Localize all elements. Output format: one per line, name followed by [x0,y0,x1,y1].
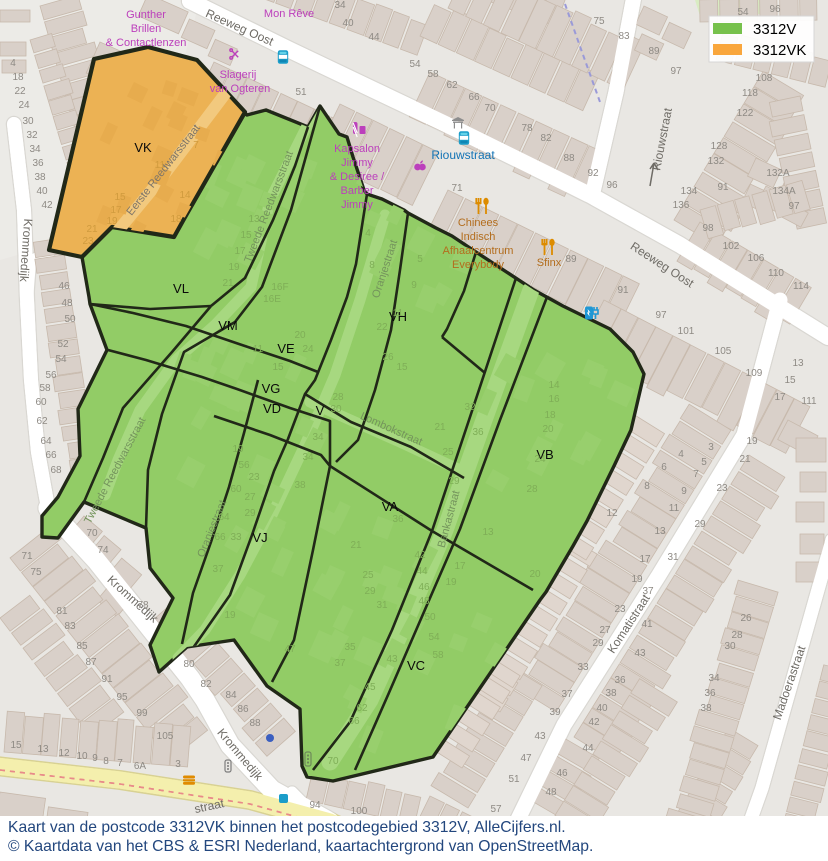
svg-text:25: 25 [442,447,454,458]
svg-text:13: 13 [248,214,260,225]
svg-text:70: 70 [327,756,339,767]
svg-text:132A: 132A [766,168,790,179]
svg-text:15: 15 [240,230,252,241]
svg-text:& Desiree /: & Desiree / [330,171,385,183]
svg-text:13: 13 [654,526,666,537]
svg-text:94: 94 [309,800,321,811]
svg-text:19: 19 [631,574,643,585]
svg-text:99: 99 [136,708,148,719]
svg-text:36: 36 [614,675,626,686]
svg-text:21: 21 [350,540,362,551]
svg-text:56: 56 [238,460,250,471]
svg-text:van Ogteren: van Ogteren [210,83,271,95]
svg-text:81: 81 [56,606,68,617]
svg-text:62: 62 [446,80,458,91]
svg-text:38: 38 [294,480,306,491]
svg-text:60: 60 [35,397,47,408]
svg-text:4: 4 [10,58,16,69]
svg-text:40: 40 [36,186,48,197]
svg-text:24: 24 [302,344,314,355]
svg-text:© Kaartdata van het CBS & ESRI: © Kaartdata van het CBS & ESRI Nederland… [8,838,593,855]
svg-text:46: 46 [418,582,430,593]
svg-text:110: 110 [768,268,784,279]
svg-text:& Contactlenzen: & Contactlenzen [106,37,187,49]
svg-text:23: 23 [716,483,728,494]
svg-text:45: 45 [364,682,376,693]
svg-text:118: 118 [742,88,758,99]
svg-text:43: 43 [634,648,646,659]
svg-text:46: 46 [556,768,568,779]
svg-text:4: 4 [365,228,371,239]
svg-text:Everybody: Everybody [452,259,504,271]
svg-text:70: 70 [484,103,496,114]
svg-text:5: 5 [701,457,707,468]
svg-text:26: 26 [382,352,394,363]
svg-text:8: 8 [644,481,650,492]
svg-text:28: 28 [731,630,743,641]
svg-text:7: 7 [117,758,123,769]
svg-text:44: 44 [368,32,380,43]
svg-text:48: 48 [61,298,73,309]
svg-text:109: 109 [746,368,763,379]
svg-text:Sfinx: Sfinx [537,257,562,269]
svg-text:18: 18 [170,214,182,225]
svg-text:11: 11 [669,503,680,514]
svg-text:Riouwstraat: Riouwstraat [431,148,495,162]
svg-text:51: 51 [508,774,520,785]
svg-text:19: 19 [232,444,244,455]
svg-text:30: 30 [22,116,34,127]
svg-text:17: 17 [454,561,466,572]
svg-text:41: 41 [641,619,653,630]
svg-text:29: 29 [592,638,604,649]
svg-text:3: 3 [175,759,181,770]
svg-text:34: 34 [708,673,720,684]
svg-text:Indisch: Indisch [461,231,496,243]
svg-text:114: 114 [793,281,809,292]
svg-text:47: 47 [284,644,296,655]
svg-text:31: 31 [376,600,388,611]
svg-text:12: 12 [58,748,70,759]
svg-text:98: 98 [702,223,714,234]
svg-text:VC: VC [407,658,425,673]
svg-text:48: 48 [545,787,557,798]
svg-text:4: 4 [678,449,684,460]
svg-text:24: 24 [534,454,546,465]
svg-text:Chinees: Chinees [458,217,499,229]
svg-text:96: 96 [606,180,618,191]
svg-text:27: 27 [599,625,611,636]
svg-text:16: 16 [548,394,560,405]
svg-text:42: 42 [588,717,600,728]
svg-text:Slagerij: Slagerij [220,69,257,81]
svg-text:3: 3 [708,442,714,453]
svg-text:18: 18 [12,72,24,83]
svg-text:21: 21 [222,278,234,289]
svg-text:20: 20 [529,569,541,580]
svg-text:86: 86 [237,704,249,715]
svg-text:5: 5 [417,254,423,265]
svg-text:52: 52 [57,339,69,350]
svg-text:74: 74 [97,545,109,556]
svg-text:80: 80 [183,659,195,670]
svg-text:18: 18 [544,410,556,421]
svg-text:89: 89 [565,254,577,265]
svg-text:43: 43 [386,654,398,665]
svg-text:88: 88 [563,153,575,164]
svg-text:17: 17 [774,392,786,403]
svg-text:8: 8 [103,756,109,767]
svg-text:17: 17 [234,246,246,257]
svg-text:15: 15 [10,740,22,751]
svg-text:37: 37 [334,658,346,669]
svg-text:6A: 6A [134,761,147,772]
svg-text:20: 20 [294,330,306,341]
svg-text:33: 33 [230,532,242,543]
svg-text:78: 78 [521,123,533,134]
svg-text:108: 108 [756,73,773,84]
svg-text:32: 32 [26,130,38,141]
svg-text:47: 47 [520,753,532,764]
svg-text:Mon Rêve: Mon Rêve [264,8,314,20]
svg-text:17: 17 [639,554,651,565]
svg-text:Kapsalon: Kapsalon [334,143,380,155]
svg-text:Jimmy: Jimmy [341,199,373,211]
svg-text:21: 21 [739,454,751,465]
svg-text:15: 15 [396,362,408,373]
svg-text:34: 34 [334,0,346,11]
svg-text:23: 23 [82,236,94,247]
svg-text:46: 46 [58,281,70,292]
svg-text:38: 38 [34,172,46,183]
svg-text:56: 56 [45,370,57,381]
svg-text:13: 13 [482,527,494,538]
svg-text:33: 33 [577,662,589,673]
svg-text:9: 9 [92,753,98,764]
svg-text:57: 57 [490,804,502,815]
svg-text:36: 36 [472,427,484,438]
svg-text:134: 134 [681,186,698,197]
svg-text:48: 48 [418,596,430,607]
svg-text:37: 37 [642,586,654,597]
svg-text:101: 101 [678,326,695,337]
svg-text:51: 51 [295,87,307,98]
svg-text:19: 19 [228,262,240,273]
svg-text:95: 95 [116,692,128,703]
svg-text:Jimmy: Jimmy [341,157,373,169]
svg-text:19: 19 [224,610,236,621]
svg-text:19: 19 [746,436,758,447]
svg-text:VA: VA [382,499,399,514]
svg-text:32: 32 [464,402,476,413]
svg-text:91: 91 [101,674,113,685]
svg-text:84: 84 [225,690,237,701]
svg-text:64: 64 [218,512,230,523]
svg-text:136: 136 [673,200,690,211]
svg-text:19: 19 [106,216,118,227]
svg-text:122: 122 [737,108,754,119]
svg-text:106: 106 [748,253,765,264]
svg-text:16F: 16F [271,282,288,293]
svg-text:58: 58 [39,383,51,394]
svg-text:132: 132 [708,156,725,167]
svg-text:58: 58 [427,69,439,80]
svg-text:21: 21 [434,422,446,433]
svg-text:60: 60 [230,484,242,495]
svg-text:22: 22 [376,322,388,333]
svg-text:83: 83 [618,31,630,42]
svg-text:Barber: Barber [340,185,373,197]
svg-text:19: 19 [445,577,457,588]
svg-text:71: 71 [451,183,463,194]
svg-text:7: 7 [193,140,199,151]
svg-text:111: 111 [801,396,817,407]
svg-text:97: 97 [670,66,682,77]
svg-text:Afhaalcentrum: Afhaalcentrum [443,245,514,257]
svg-text:28: 28 [332,392,344,403]
svg-text:70: 70 [86,528,98,539]
svg-text:75: 75 [30,567,42,578]
svg-text:16E: 16E [263,294,281,305]
svg-text:62: 62 [356,703,368,714]
svg-text:34: 34 [312,432,324,443]
svg-text:105: 105 [157,731,174,742]
svg-text:26: 26 [740,613,752,624]
svg-text:29: 29 [244,508,256,519]
svg-text:87: 87 [85,657,97,668]
svg-text:12: 12 [606,508,618,519]
svg-text:128: 128 [711,141,728,152]
svg-text:20: 20 [542,424,554,435]
svg-text:34: 34 [29,144,41,155]
svg-text:50: 50 [424,612,436,623]
svg-text:82: 82 [540,133,552,144]
svg-text:25: 25 [362,570,374,581]
svg-text:13: 13 [792,358,804,369]
svg-text:64: 64 [40,436,52,447]
svg-text:38: 38 [605,688,617,699]
svg-text:17: 17 [110,205,122,216]
svg-text:36: 36 [32,158,44,169]
svg-text:50: 50 [64,314,76,325]
svg-text:24: 24 [18,100,30,111]
svg-text:22: 22 [14,86,26,97]
svg-text:35: 35 [344,642,356,653]
svg-text:97: 97 [788,201,800,212]
svg-text:11: 11 [155,160,166,171]
svg-text:44: 44 [582,743,594,754]
svg-text:Gunther: Gunther [126,9,166,21]
svg-text:88: 88 [249,718,261,729]
svg-text:34: 34 [302,452,314,463]
svg-text:29: 29 [448,476,460,487]
svg-text:21: 21 [86,224,98,235]
svg-text:36: 36 [704,688,716,699]
svg-text:75: 75 [593,16,605,27]
svg-text:29: 29 [364,586,376,597]
svg-text:92: 92 [587,168,599,179]
svg-text:71: 71 [21,551,33,562]
svg-text:40: 40 [342,18,354,29]
svg-text:VD: VD [263,401,281,416]
svg-text:13: 13 [37,744,49,755]
svg-text:3312VK: 3312VK [753,42,806,59]
svg-text:40: 40 [596,703,608,714]
svg-text:54: 54 [409,59,421,70]
svg-text:14: 14 [548,380,560,391]
svg-text:66: 66 [214,532,226,543]
svg-text:58: 58 [432,650,444,661]
svg-text:30: 30 [330,404,342,415]
svg-text:54: 54 [428,632,440,643]
svg-text:6: 6 [661,462,667,473]
svg-text:134A: 134A [772,186,796,197]
svg-text:66: 66 [468,92,480,103]
svg-text:VK: VK [134,140,152,155]
svg-text:78: 78 [137,600,149,611]
svg-text:15: 15 [272,362,284,373]
svg-text:Kaart van de postcode 3312VK b: Kaart van de postcode 3312VK binnen het … [8,819,566,836]
svg-text:15: 15 [114,192,126,203]
svg-text:31: 31 [667,552,679,563]
svg-text:68: 68 [50,465,62,476]
svg-text:96: 96 [769,4,781,15]
svg-text:44: 44 [416,566,428,577]
svg-text:23: 23 [248,472,260,483]
svg-text:VL: VL [173,281,189,296]
svg-text:102: 102 [723,241,740,252]
svg-text:3312V: 3312V [753,21,796,38]
svg-text:8: 8 [369,260,375,271]
svg-text:43: 43 [534,731,546,742]
svg-text:VG: VG [262,381,281,396]
svg-text:11: 11 [393,308,404,319]
svg-text:37: 37 [561,689,573,700]
svg-text:100: 100 [351,806,368,817]
svg-text:15: 15 [784,375,796,386]
svg-text:39: 39 [549,707,561,718]
svg-text:66: 66 [45,450,57,461]
svg-text:82: 82 [200,679,212,690]
svg-text:66: 66 [348,716,360,727]
svg-text:89: 89 [648,46,660,57]
svg-text:23: 23 [614,604,626,615]
svg-text:42: 42 [414,550,426,561]
svg-text:38: 38 [700,703,712,714]
svg-text:91: 91 [717,182,729,193]
svg-text:37: 37 [212,564,224,575]
svg-text:54: 54 [55,354,67,365]
svg-text:105: 105 [715,346,732,357]
svg-text:9: 9 [681,486,687,497]
svg-text:VM: VM [218,318,238,333]
svg-text:7: 7 [693,469,699,480]
svg-text:27: 27 [244,492,256,503]
svg-text:9: 9 [411,280,417,291]
svg-text:10: 10 [76,751,88,762]
svg-text:VE: VE [277,341,295,356]
svg-text:97: 97 [655,310,667,321]
svg-text:91: 91 [617,285,629,296]
svg-text:Brillen: Brillen [131,23,162,35]
svg-text:36: 36 [392,514,404,525]
svg-text:29: 29 [694,519,706,530]
svg-text:VJ: VJ [252,530,267,545]
svg-text:85: 85 [76,641,88,652]
svg-text:62: 62 [36,416,48,427]
svg-text:28: 28 [526,484,538,495]
svg-text:83: 83 [64,621,76,632]
svg-text:11: 11 [253,344,264,355]
svg-text:30: 30 [724,641,736,652]
svg-text:V: V [316,403,325,418]
svg-text:42: 42 [41,200,53,211]
svg-text:14: 14 [179,190,191,201]
